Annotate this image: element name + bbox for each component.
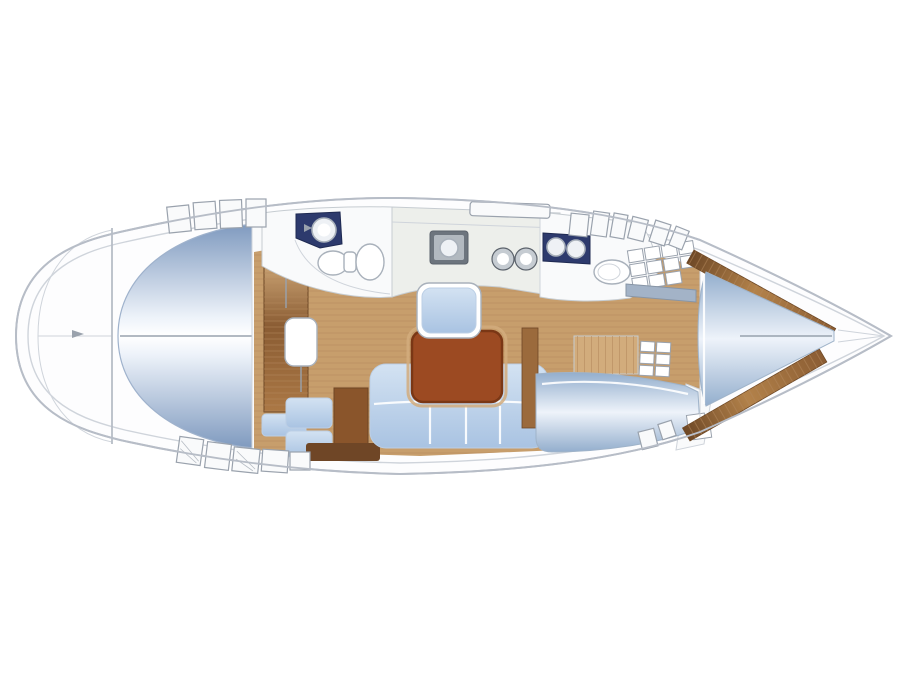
galley [392,207,560,297]
locker-cell [663,257,680,271]
locker-cell [630,262,647,276]
dresser-drawer [656,342,671,353]
shower-seat [356,244,384,280]
slatted-cabinet-louvers [574,336,638,374]
stove-burner [440,239,458,257]
deck-hatch [246,199,266,227]
aft-facing-seat [422,288,476,333]
locker-cell [665,271,682,285]
dresser-drawer [656,354,671,365]
nav-cabinet [334,388,368,448]
toilet-tank [344,252,356,272]
galley-sink-right-bowl [520,253,532,265]
washbasin-2b [567,240,585,258]
washbasin-bowl [318,224,331,237]
dresser-drawer [640,353,655,364]
dresser-drawer [640,341,655,352]
toilet-2 [594,260,630,284]
locker-cell [644,246,661,260]
floorplan-canvas [0,0,900,675]
deck-hatch [261,449,288,473]
locker-cell [627,249,644,263]
deck-hatch [220,200,243,229]
locker-cell [649,274,666,288]
deck-hatch-hatched [176,436,203,465]
nav-cabinet-base [306,443,380,461]
galley-sink-left-bowl [497,253,509,265]
washbasin-2a [547,238,565,256]
dresser-drawer [655,366,670,377]
yacht-floorplan-image [0,0,900,675]
locker-cell [646,260,663,274]
folding-seat [285,318,317,366]
salon-table [412,331,502,402]
port-bench-cushion-a [286,398,332,428]
deck-hatch [569,213,589,237]
dresser-drawer [639,365,654,376]
